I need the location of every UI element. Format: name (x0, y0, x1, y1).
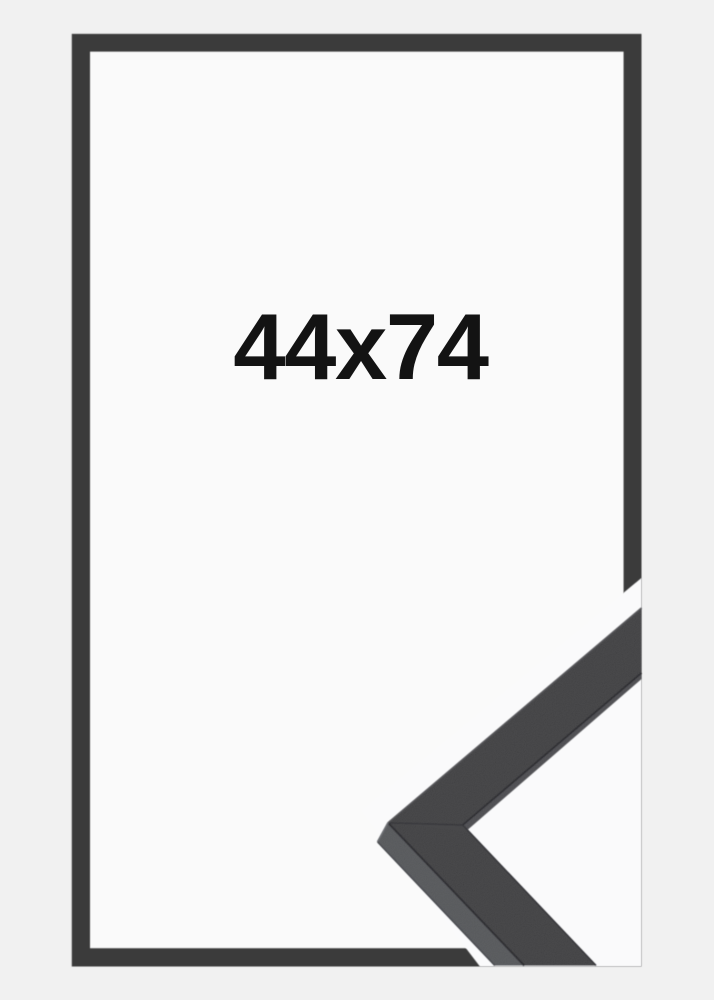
svg-text:44x74: 44x74 (233, 294, 489, 399)
